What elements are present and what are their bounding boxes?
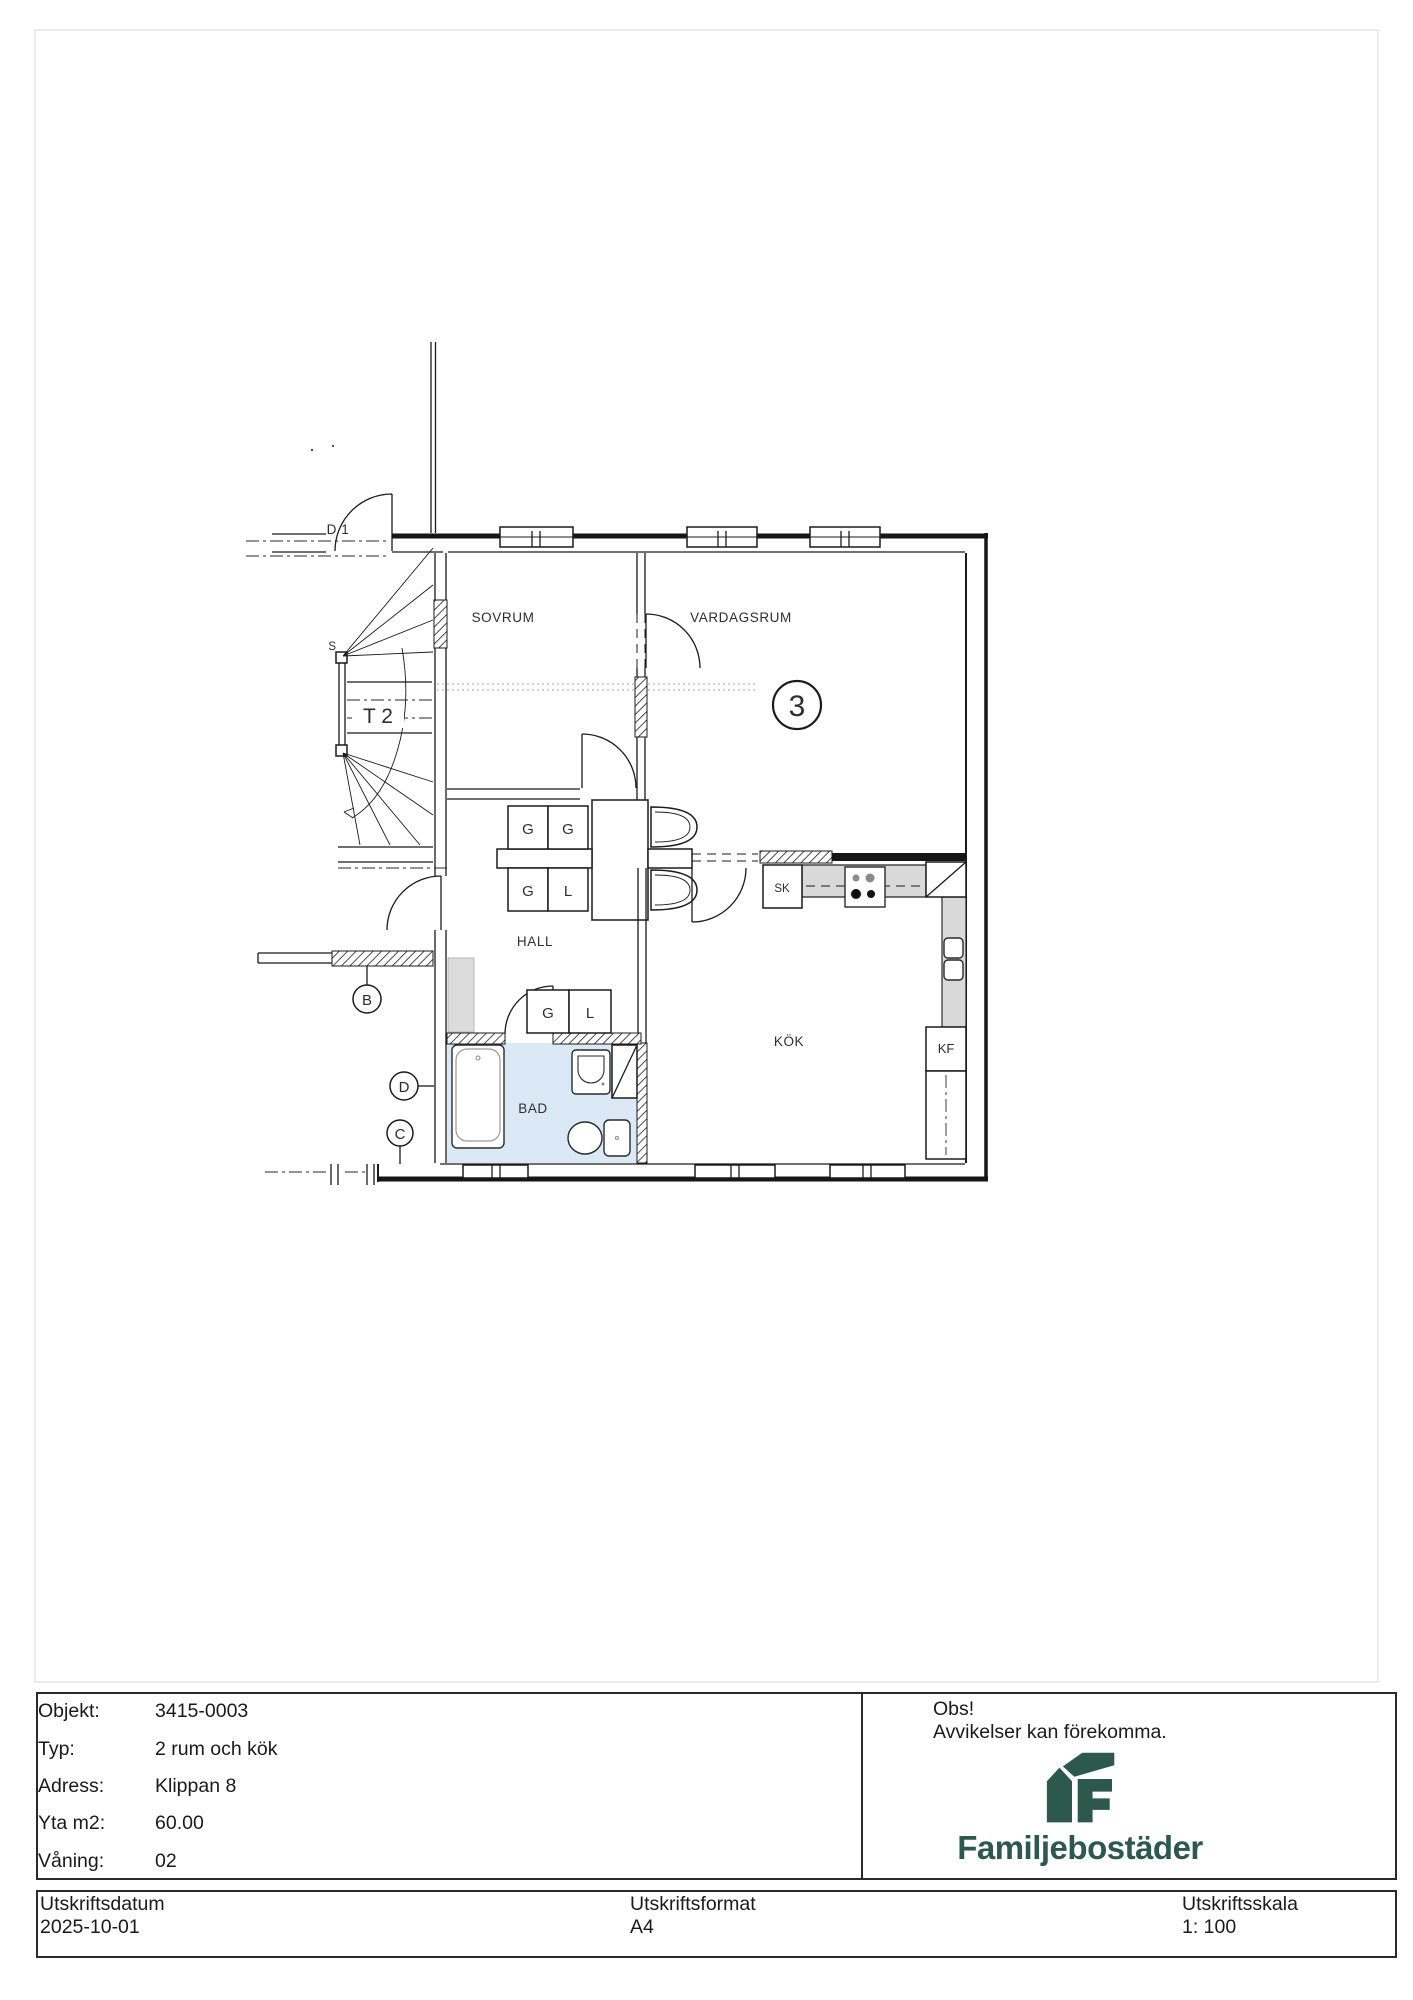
svg-text:SK: SK: [774, 883, 790, 895]
room-divider-wall: [635, 553, 700, 800]
info-value: Klippan 8: [155, 1775, 236, 1798]
info-rows: Objekt: 3415-0003 Typ: 2 rum och kök Adr…: [38, 1693, 838, 1880]
section-mark-d: D: [390, 1072, 434, 1100]
svg-text:B: B: [362, 992, 372, 1009]
info-value: 02: [155, 1850, 177, 1873]
info-value: 60.00: [155, 1812, 204, 1835]
brand-logo-icon: [1040, 1750, 1120, 1824]
closet-g-label: G: [542, 1005, 554, 1022]
info-row: Typ: 2 rum och kök: [38, 1730, 838, 1767]
svg-text:3: 3: [789, 690, 806, 723]
window: [500, 527, 573, 547]
svg-text:C: C: [395, 1126, 406, 1143]
document-page: { "plan": { "labels": { "sovrum": "SOVRU…: [0, 0, 1413, 2000]
plan-image-border: [35, 30, 1378, 1682]
info-value: 3415-0003: [155, 1700, 248, 1723]
wardrobe-l-label: L: [564, 883, 572, 900]
footer-label: Utskriftsskala: [1182, 1893, 1298, 1916]
obs-body: Avvikelser kan förekomma.: [933, 1721, 1167, 1744]
info-row: Objekt: 3415-0003: [38, 1693, 838, 1730]
bathtub: [452, 1045, 504, 1148]
section-mark-b: B: [353, 985, 381, 1013]
window: [810, 527, 880, 547]
stair-label: T 2: [363, 705, 393, 728]
obs-title: Obs!: [933, 1698, 1167, 1721]
stair-s-label: S: [328, 641, 336, 653]
footer-cell-date: Utskriftsdatum 2025-10-01: [40, 1893, 165, 1939]
window: [695, 1165, 775, 1178]
hall-closet-block: [497, 800, 758, 920]
svg-text:KF: KF: [938, 1041, 955, 1056]
section-wall-b: [258, 951, 433, 985]
info-label: Adress:: [38, 1775, 155, 1798]
west-wall: [387, 553, 447, 1163]
wardrobe-g-label: G: [522, 821, 534, 838]
info-row: Våning: 02: [38, 1843, 838, 1880]
info-label: Våning:: [38, 1850, 155, 1873]
window: [830, 1165, 905, 1178]
cabinet-sk: SK: [763, 865, 802, 908]
floor-plan: D 1 T 2 S: [0, 0, 1413, 1690]
window: [463, 1165, 528, 1178]
corner-cabinet: [926, 862, 966, 897]
room-label-bad: BAD: [518, 1101, 548, 1116]
shaft: [448, 958, 474, 1032]
wardrobe-g-label: G: [562, 821, 574, 838]
footer-label: Utskriftsformat: [630, 1893, 756, 1916]
room-label-sovrum: SOVRUM: [472, 610, 535, 625]
obs-note: Obs! Avvikelser kan förekomma.: [933, 1698, 1167, 1744]
footer-value: 2025-10-01: [40, 1916, 165, 1939]
brand-wordmark: Familjebostäder: [955, 1829, 1205, 1867]
party-wall-stub: [431, 342, 436, 533]
footer-label: Utskriftsdatum: [40, 1893, 165, 1916]
apartment-number-badge: 3: [773, 681, 821, 729]
info-row: Adress: Klippan 8: [38, 1768, 838, 1805]
info-label: Typ:: [38, 1738, 155, 1761]
footer-cell-scale: Utskriftsskala 1: 100: [1182, 1893, 1298, 1939]
kitchen-tall-cabinet: [926, 1071, 966, 1159]
stove: [845, 867, 885, 907]
info-label: Yta m2:: [38, 1812, 155, 1835]
footer-cell-format: Utskriftsformat A4: [630, 1893, 756, 1939]
info-row: Yta m2: 60.00: [38, 1805, 838, 1842]
hall-closets-gl: [527, 990, 611, 1033]
bathroom-corner-unit: [612, 1045, 637, 1098]
room-label-vardagsrum: VARDAGSRUM: [690, 610, 792, 625]
dimension-marks: [265, 1164, 374, 1185]
section-mark-c: C: [387, 1120, 413, 1164]
dimension-dotted-lines: [437, 684, 758, 690]
window: [687, 527, 757, 547]
entrance-door-label: D 1: [327, 522, 350, 537]
footer-value: 1: 100: [1182, 1916, 1298, 1939]
fridge-kf: KF: [926, 1027, 966, 1071]
plan-speck: [311, 449, 313, 451]
closet-l-label: L: [586, 1005, 594, 1022]
footer-value: A4: [630, 1916, 756, 1939]
room-label-kok: KÖK: [774, 1034, 804, 1049]
wardrobe-g-label: G: [522, 883, 534, 900]
plan-speck: [332, 445, 334, 447]
bathroom-sink: [572, 1050, 610, 1094]
info-value: 2 rum och kök: [155, 1738, 277, 1761]
info-label: Objekt:: [38, 1700, 155, 1723]
info-table-divider: [861, 1692, 863, 1880]
room-label-hall: HALL: [517, 934, 553, 949]
svg-text:D: D: [399, 1079, 410, 1096]
sovrum-south-wall: [447, 734, 636, 799]
